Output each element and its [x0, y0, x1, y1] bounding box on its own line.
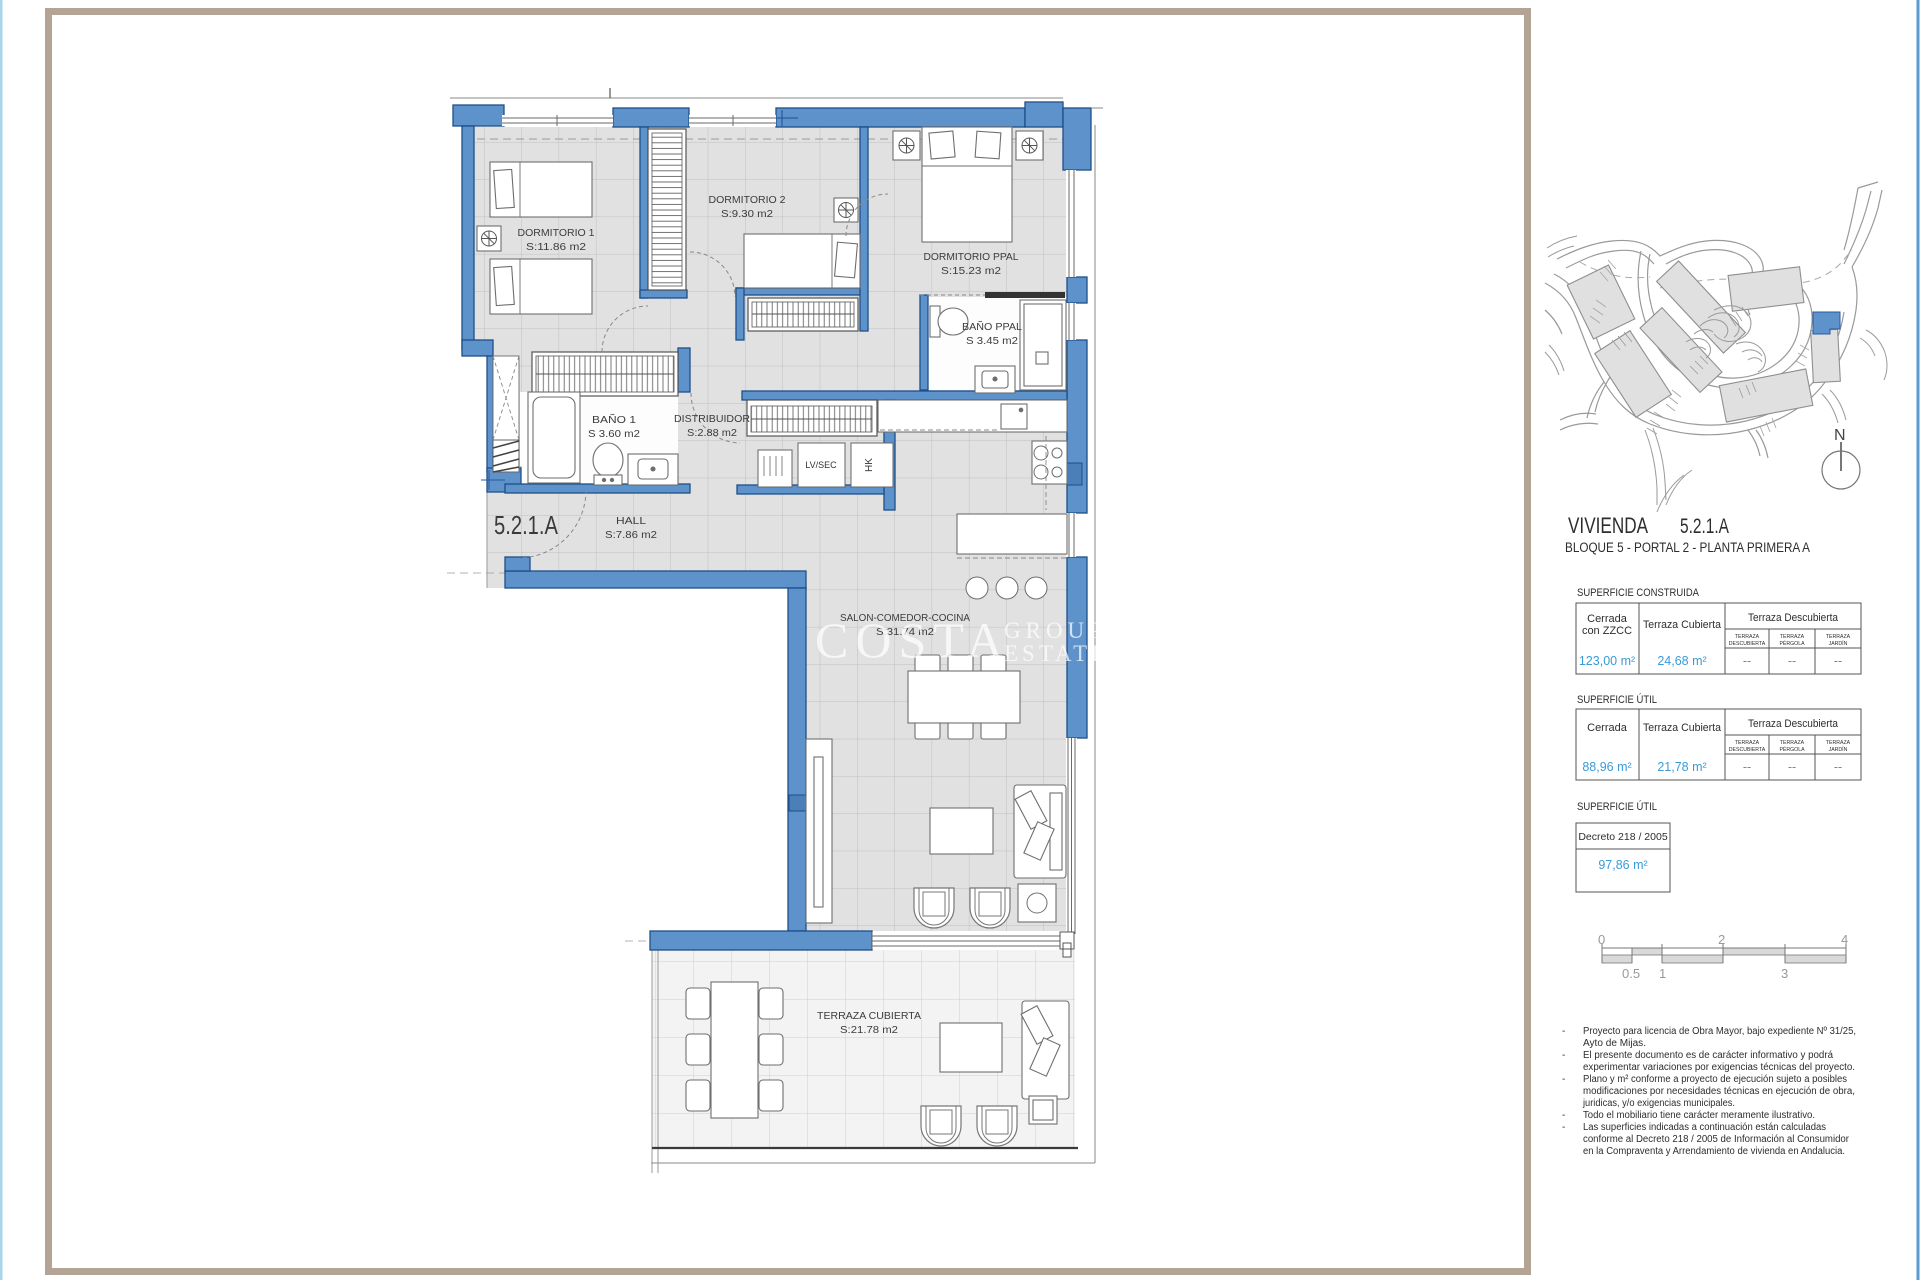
svg-text:Terraza Descubierta: Terraza Descubierta [1748, 612, 1839, 624]
svg-text:-: - [1562, 1074, 1565, 1085]
svg-text:TERRAZA CUBIERTA: TERRAZA CUBIERTA [817, 1011, 921, 1022]
svg-text:S:15.23 m2: S:15.23 m2 [941, 266, 1001, 277]
svg-text:-: - [1562, 1110, 1565, 1121]
svg-text:4: 4 [1841, 932, 1848, 947]
svg-text:BAÑO 1: BAÑO 1 [592, 413, 637, 426]
svg-text:SUPERFICIE ÚTIL: SUPERFICIE ÚTIL [1577, 800, 1657, 813]
svg-text:HK: HK [864, 458, 875, 472]
svg-text:TERRAZA: TERRAZA [1780, 740, 1805, 746]
svg-text:--: -- [1788, 760, 1796, 774]
svg-text:DESCUBIERTA: DESCUBIERTA [1729, 747, 1766, 753]
svg-text:--: -- [1743, 760, 1751, 774]
svg-text:Ayto de Mijas.: Ayto de Mijas. [1583, 1038, 1646, 1049]
svg-text:HALL: HALL [616, 516, 647, 527]
svg-text:TERRAZA: TERRAZA [1826, 740, 1851, 746]
svg-text:1: 1 [1659, 966, 1666, 981]
svg-text:conforme al Decreto 218 / 2005: conforme al Decreto 218 / 2005 de Inform… [1583, 1134, 1850, 1145]
svg-text:Cerrada: Cerrada [1587, 722, 1628, 734]
svg-text:JARDÍN: JARDÍN [1829, 746, 1848, 753]
svg-text:Proyecto para licencia de Obra: Proyecto para licencia de Obra Mayor, ba… [1583, 1026, 1856, 1037]
svg-text:TERRAZA: TERRAZA [1735, 634, 1760, 640]
svg-text:PÉRGOLA: PÉRGOLA [1779, 746, 1805, 753]
svg-text:--: -- [1788, 654, 1796, 668]
svg-text:Las superficies indicadas a co: Las superficies indicadas a continuación… [1583, 1122, 1826, 1133]
svg-text:experimentar variaciones por e: experimentar variaciones por exigencias … [1583, 1062, 1855, 1073]
svg-text:DESCUBIERTA: DESCUBIERTA [1729, 641, 1766, 647]
svg-text:-: - [1562, 1122, 1565, 1133]
svg-text:0.5: 0.5 [1622, 966, 1640, 981]
svg-text:S 3.45 m2: S 3.45 m2 [966, 336, 1018, 347]
svg-text:SUPERFICIE ÚTIL: SUPERFICIE ÚTIL [1577, 693, 1657, 706]
svg-text:DISTRIBUIDOR: DISTRIBUIDOR [674, 414, 750, 425]
svg-text:Terraza Descubierta: Terraza Descubierta [1748, 718, 1839, 730]
svg-text:5.2.1.A: 5.2.1.A [494, 510, 559, 540]
svg-text:21,78 m²: 21,78 m² [1657, 760, 1706, 774]
svg-text:COSTA: COSTA [815, 612, 1010, 668]
svg-text:S:11.86 m2: S:11.86 m2 [526, 242, 587, 253]
svg-text:--: -- [1834, 760, 1842, 774]
svg-text:DORMITORIO 1: DORMITORIO 1 [518, 228, 595, 239]
svg-text:88,96 m²: 88,96 m² [1582, 760, 1631, 774]
svg-text:TERRAZA: TERRAZA [1780, 634, 1805, 640]
svg-text:modificaciones por necesidades: modificaciones por necesidades técnicas … [1583, 1086, 1855, 1097]
svg-text:Cerrada: Cerrada [1587, 613, 1628, 625]
svg-text:S:21.78 m2: S:21.78 m2 [840, 1025, 898, 1036]
svg-text:Terraza Cubierta: Terraza Cubierta [1643, 722, 1722, 734]
svg-text:TERRAZA: TERRAZA [1826, 634, 1851, 640]
svg-text:SUPERFICIE CONSTRUIDA: SUPERFICIE CONSTRUIDA [1577, 587, 1700, 599]
svg-text:--: -- [1743, 654, 1751, 668]
svg-text:5.2.1.A: 5.2.1.A [1680, 515, 1729, 538]
svg-text:PÉRGOLA: PÉRGOLA [1779, 640, 1805, 647]
svg-text:El presente documento es de ca: El presente documento es de carácter inf… [1583, 1050, 1833, 1061]
svg-text:S:2.88 m2: S:2.88 m2 [687, 428, 737, 439]
svg-text:123,00 m²: 123,00 m² [1579, 654, 1635, 668]
svg-text:LV/SEC: LV/SEC [805, 460, 837, 470]
svg-text:-: - [1562, 1050, 1565, 1061]
svg-text:TERRAZA: TERRAZA [1735, 740, 1760, 746]
svg-text:BAÑO PPAL: BAÑO PPAL [962, 320, 1022, 333]
svg-text:DORMITORIO 2: DORMITORIO 2 [709, 195, 786, 206]
svg-text:S 3.60 m2: S 3.60 m2 [588, 429, 640, 440]
svg-text:3: 3 [1781, 966, 1788, 981]
svg-text:JARDÍN: JARDÍN [1829, 640, 1848, 647]
svg-text:Plano y m² conforme a proyecto: Plano y m² conforme a proyecto de ejecuc… [1583, 1074, 1847, 1085]
svg-text:con ZZCC: con ZZCC [1582, 625, 1632, 637]
svg-text:N: N [1834, 427, 1846, 444]
svg-text:Terraza Cubierta: Terraza Cubierta [1643, 619, 1722, 631]
svg-text:S:7.86 m2: S:7.86 m2 [605, 530, 657, 541]
svg-text:2: 2 [1718, 932, 1725, 947]
svg-text:Todo el mobiliario tiene carác: Todo el mobiliario tiene carácter merame… [1583, 1110, 1815, 1121]
svg-text:Decreto 218 / 2005: Decreto 218 / 2005 [1578, 831, 1667, 843]
svg-text:en la Compraventa y Arrendamie: en la Compraventa y Arrendamiento de viv… [1583, 1146, 1845, 1157]
svg-text:VIVIENDA: VIVIENDA [1568, 513, 1648, 538]
svg-text:ESTATE: ESTATE [1004, 641, 1109, 666]
svg-text:0: 0 [1598, 932, 1605, 947]
svg-text:S:9.30 m2: S:9.30 m2 [721, 209, 773, 220]
svg-text:97,86 m²: 97,86 m² [1598, 858, 1647, 872]
svg-text:BLOQUE 5 - PORTAL 2 - PLANTA P: BLOQUE 5 - PORTAL 2 - PLANTA PRIMERA A [1565, 540, 1810, 555]
svg-text:24,68 m²: 24,68 m² [1657, 654, 1706, 668]
svg-text:-: - [1562, 1026, 1565, 1037]
svg-text:juridicas, y/o exigencias muni: juridicas, y/o exigencias municipales. [1582, 1098, 1735, 1109]
svg-text:DORMITORIO PPAL: DORMITORIO PPAL [924, 252, 1019, 263]
svg-text:--: -- [1834, 654, 1842, 668]
svg-text:GROUP: GROUP [1004, 618, 1107, 643]
